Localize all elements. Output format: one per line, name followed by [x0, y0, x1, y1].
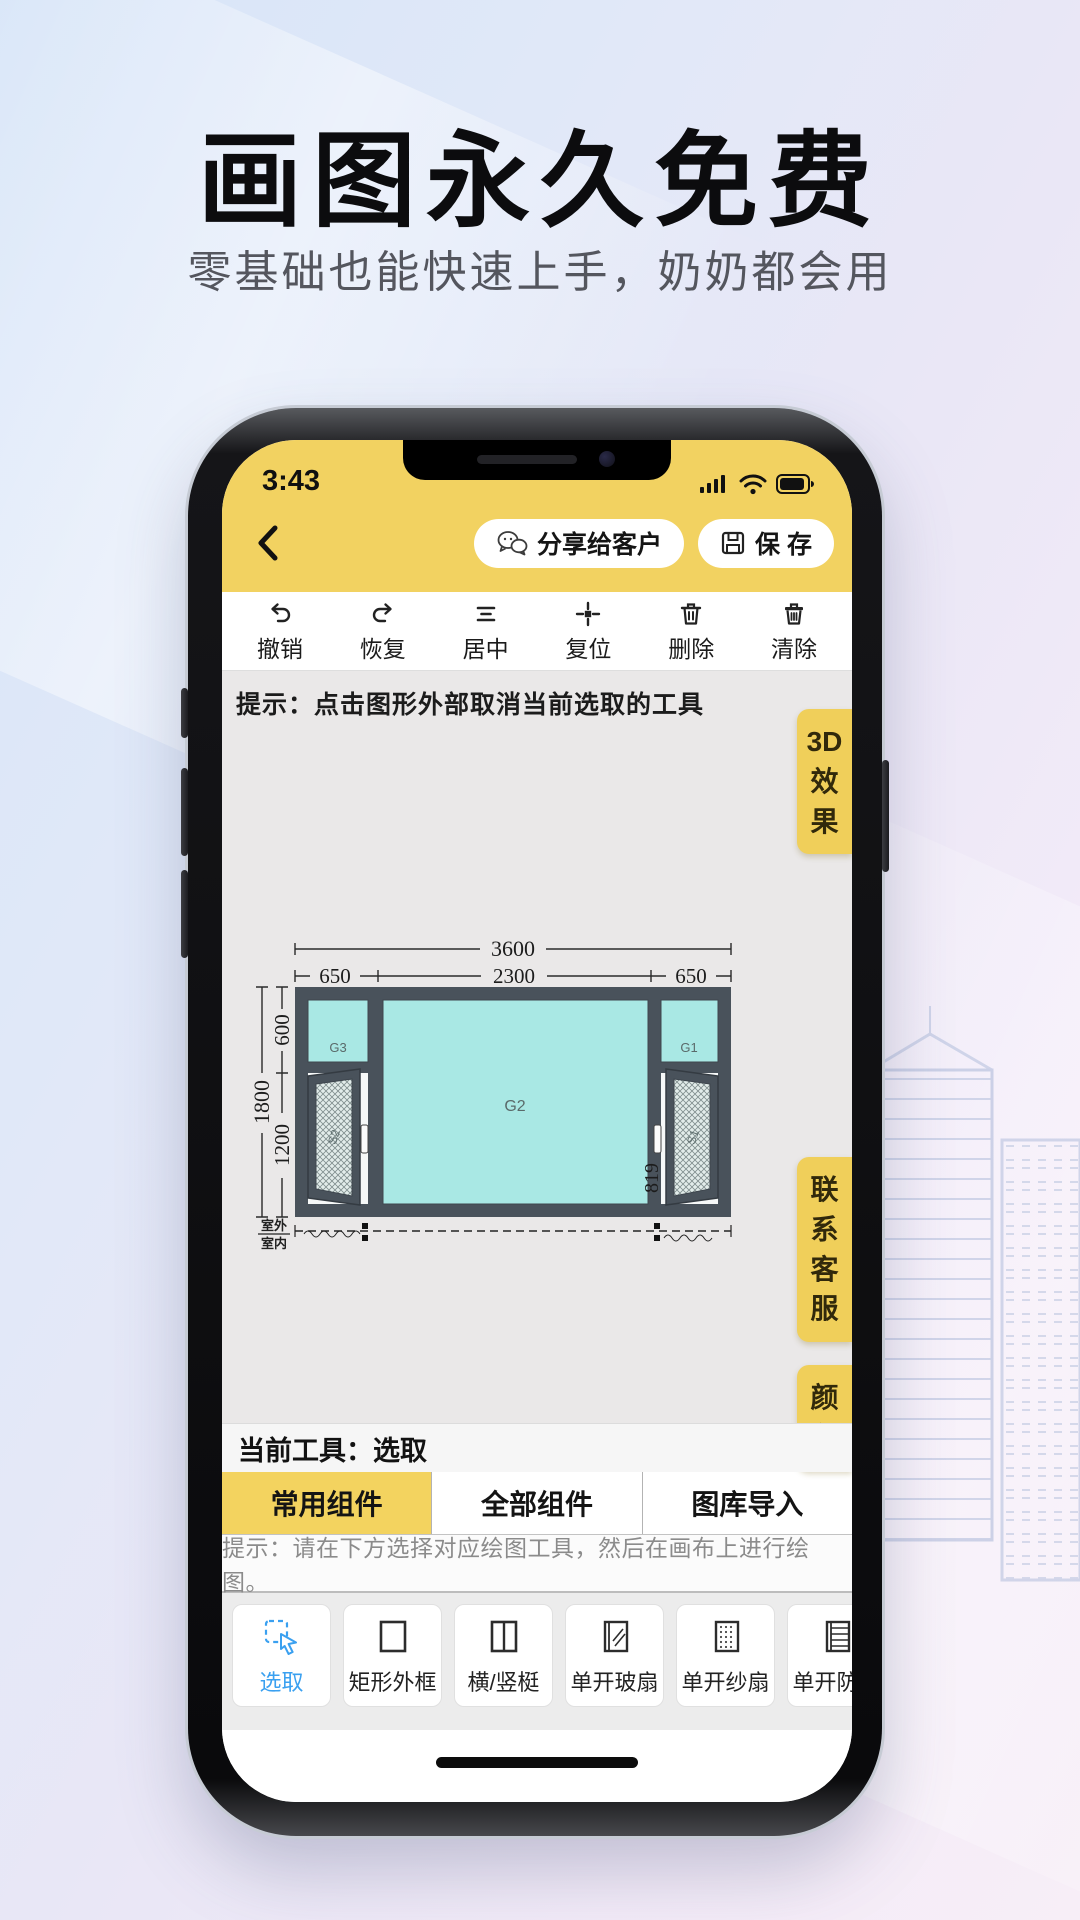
dim-sash: 819 [641, 1163, 663, 1193]
contact-service-line: 客 [797, 1250, 852, 1290]
app-header: 分享给客户 保 存 [222, 500, 852, 592]
center-label: 恢复 [360, 630, 406, 664]
tool-glass-sash[interactable]: 单开玻扇 [565, 1604, 664, 1707]
chevron-left-icon [257, 525, 279, 561]
clear-button[interactable]: 清除 [758, 599, 830, 664]
mullion-icon [482, 1615, 526, 1659]
current-tool-status: 当前工具：选取 [222, 1423, 852, 1472]
dim-total-width: 3600 [491, 936, 535, 961]
pane-g1-label: G1 [680, 1040, 697, 1055]
clear-icon [779, 599, 809, 629]
speaker-slot [477, 455, 577, 464]
color-line: 颜 [797, 1378, 852, 1418]
status-time: 3:43 [262, 465, 320, 498]
align-center-label: 居中 [463, 630, 509, 664]
tool-select[interactable]: 选取 [232, 1604, 331, 1707]
tab-label: 全部组件 [481, 1483, 593, 1523]
reset-label: 复位 [565, 630, 611, 664]
3d-effect-button[interactable]: 3D 效 果 [797, 709, 852, 854]
rect-frame-icon [371, 1615, 415, 1659]
3d-effect-line: 果 [797, 802, 852, 842]
indoor-label: 室内 [261, 1236, 287, 1251]
tool-palette: 选取 矩形外框 横/竖梃 [222, 1593, 852, 1730]
window-diagram[interactable]: 3600 650 2300 650 [248, 935, 800, 1275]
pane-g2-label: G2 [504, 1098, 525, 1115]
dim-right-width: 650 [675, 964, 707, 988]
contact-service-line: 联 [797, 1170, 852, 1210]
contact-service-button[interactable]: 联 系 客 服 [797, 1157, 852, 1342]
edit-toolbar: 撤销 恢复 居中 [222, 592, 852, 671]
status-icons [700, 473, 814, 498]
dim-bottom-height: 1200 [270, 1124, 294, 1166]
home-indicator[interactable] [436, 1757, 638, 1768]
component-tabs: 常用组件 全部组件 图库导入 [222, 1472, 852, 1535]
pane-g3-label: G3 [329, 1040, 346, 1055]
tools-tip: 提示：请在下方选择对应绘图工具，然后在画布上进行绘图。 [222, 1535, 852, 1593]
drawing-canvas[interactable]: 提示：点击图形外部取消当前选取的工具 3600 [222, 671, 852, 1472]
sash-s1-handle [654, 1125, 661, 1153]
align-center-icon [471, 599, 501, 629]
phone-mockup: 3:43 [188, 408, 882, 1836]
outdoor-label: 室外 [261, 1218, 287, 1233]
tab-label: 图库导入 [691, 1483, 803, 1523]
save-button-label: 保 存 [755, 525, 812, 561]
tool-label: 矩形外框 [348, 1665, 436, 1697]
contact-service-line: 系 [797, 1210, 852, 1250]
tool-mullion[interactable]: 横/竖梃 [454, 1604, 553, 1707]
save-button[interactable]: 保 存 [698, 519, 834, 568]
delete-label: 删除 [668, 630, 714, 664]
save-icon [720, 530, 746, 556]
back-button[interactable] [246, 518, 290, 568]
redo-button[interactable]: 恢复 [347, 599, 419, 664]
front-camera [599, 451, 615, 467]
delete-button[interactable]: 删除 [655, 599, 727, 664]
page-title: 画图永久免费 [0, 96, 1080, 247]
dim-center-width: 2300 [493, 964, 535, 988]
tool-screen-sash[interactable]: 单开纱扇 [676, 1604, 775, 1707]
dim-total-height: 1800 [249, 1080, 274, 1124]
undo-label: 撤销 [257, 630, 303, 664]
tool-label: 单开玻扇 [570, 1665, 658, 1697]
clear-label: 清除 [771, 630, 817, 664]
wechat-icon [496, 530, 528, 557]
tab-label: 常用组件 [271, 1483, 383, 1523]
volume-down-button [181, 870, 188, 958]
wifi-icon [739, 473, 767, 495]
page-subtitle: 零基础也能快速上手，奶奶都会用 [0, 236, 1080, 300]
screen-sash-icon [704, 1615, 748, 1659]
tool-label: 选取 [259, 1665, 303, 1697]
security-sash-icon [815, 1615, 853, 1659]
dim-left-width: 650 [319, 964, 351, 988]
home-indicator-area [222, 1730, 852, 1802]
glass-sash-icon [593, 1615, 637, 1659]
contact-service-line: 服 [797, 1289, 852, 1329]
tab-all-components[interactable]: 全部组件 [431, 1472, 641, 1534]
dim-top-height: 600 [270, 1014, 294, 1046]
trash-icon [676, 599, 706, 629]
volume-up-button [181, 768, 188, 856]
sash-s2-handle [361, 1125, 368, 1153]
marketing-screenshot: 画图永久免费 零基础也能快速上手，奶奶都会用 3:43 [0, 0, 1080, 1920]
redo-icon [368, 599, 398, 629]
signal-icon [700, 473, 730, 495]
tool-label: 横/竖梃 [467, 1665, 539, 1697]
reset-button[interactable]: 复位 [552, 599, 624, 664]
tab-common-components[interactable]: 常用组件 [222, 1472, 431, 1534]
reset-icon [573, 599, 603, 629]
battery-icon [776, 474, 814, 494]
tab-gallery-import[interactable]: 图库导入 [642, 1472, 852, 1534]
3d-effect-line: 3D [797, 722, 852, 762]
mute-switch [181, 688, 188, 738]
undo-icon [265, 599, 295, 629]
share-to-customer-button[interactable]: 分享给客户 [474, 519, 684, 568]
tool-rect-frame[interactable]: 矩形外框 [343, 1604, 442, 1707]
canvas-tip: 提示：点击图形外部取消当前选取的工具 [222, 671, 852, 721]
phone-notch [403, 440, 671, 480]
power-button [882, 760, 889, 872]
undo-button[interactable]: 撤销 [244, 599, 316, 664]
select-cursor-icon [260, 1615, 304, 1659]
align-center-button[interactable]: 居中 [450, 599, 522, 664]
tool-security-sash[interactable]: 单开防盗 [787, 1604, 852, 1707]
app-screen: 3:43 [222, 440, 852, 1802]
tool-label: 单开纱扇 [681, 1665, 769, 1697]
tool-label: 单开防盗 [792, 1665, 852, 1697]
share-button-label: 分享给客户 [537, 525, 662, 561]
3d-effect-line: 效 [797, 762, 852, 802]
